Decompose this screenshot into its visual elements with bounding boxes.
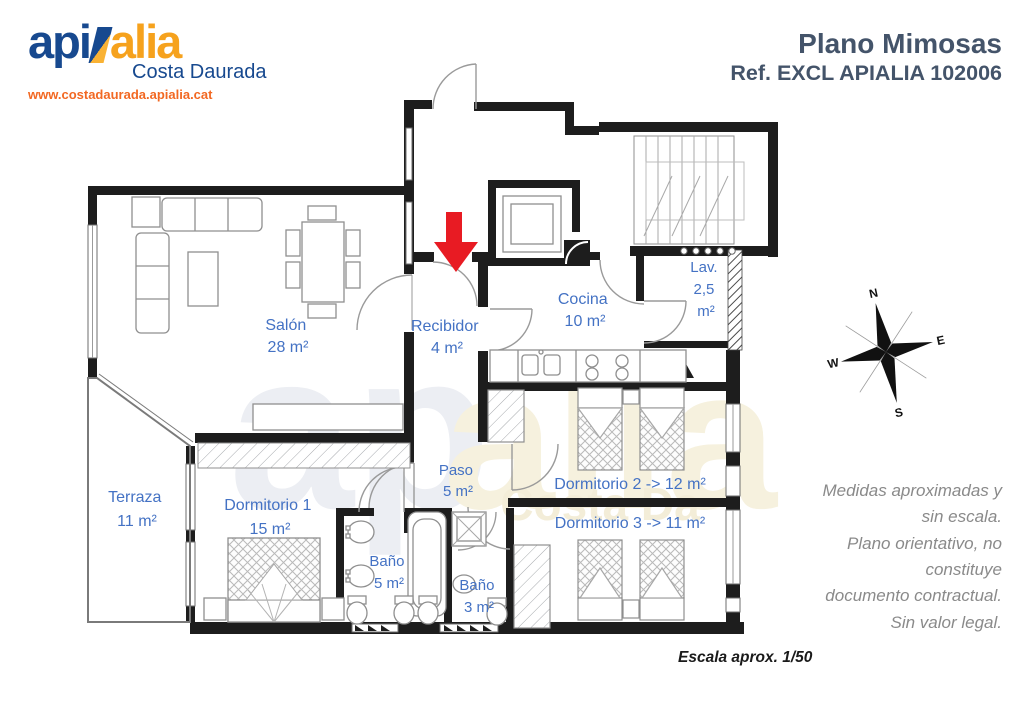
kitchen-counter — [490, 350, 686, 382]
room-label-cocina: Cocina 10 m² — [558, 291, 612, 330]
staircase — [634, 136, 744, 244]
disclaimer-line: documento contractual. — [762, 583, 1002, 609]
disclaimer-line: constituye — [762, 557, 1002, 583]
compass-e-label: E — [935, 333, 946, 348]
legal-disclaimer: Medidas aproximadas y sin escala. Plano … — [762, 478, 1002, 636]
bedroom3-furniture — [514, 540, 684, 628]
disclaimer-line: Sin valor legal. — [762, 610, 1002, 636]
disclaimer-line: Medidas aproximadas y — [762, 478, 1002, 504]
plan-title-block: Plano Mimosas Ref. EXCL APIALIA 102006 — [730, 28, 1002, 87]
agency-logo: api alia Costa Daurada www.costadaurada.… — [28, 18, 267, 102]
logo-website-url[interactable]: www.costadaurada.apialia.cat — [28, 87, 267, 102]
compass-rose: N E S W — [814, 274, 959, 432]
room-label-dormitorio2: Dormitorio 2 -> 12 m² — [554, 476, 706, 493]
compass-n-label: N — [868, 286, 879, 301]
room-label-terraza: Terraza 11 m² — [108, 489, 166, 530]
scale-note: Escala aprox. 1/50 — [678, 649, 812, 667]
logo-subtitle: Costa Daurada — [132, 61, 267, 83]
room-label-banyo5: Baño 5 m² — [369, 553, 408, 592]
room-label-banyo3: Baño 3 m² — [459, 577, 498, 616]
page-title: Plano Mimosas — [730, 28, 1002, 60]
logo-text-alia: alia — [110, 18, 180, 65]
compass-w-label: W — [826, 355, 841, 371]
logo-leaf-icon — [88, 27, 112, 63]
room-label-lavadero: Lav. 2,5 m² — [690, 259, 721, 320]
compass-s-label: S — [894, 405, 905, 420]
room-label-dormitorio3: Dormitorio 3 -> 11 m² — [555, 515, 706, 532]
reference-number: Ref. EXCL APIALIA 102006 — [730, 60, 1002, 87]
logo-text-api: api — [28, 18, 90, 65]
logo-wordmark: api alia — [28, 18, 267, 65]
floorplan-page: api alia Costa Daurada www.costadaurada.… — [0, 0, 1024, 709]
disclaimer-line: sin escala. — [762, 504, 1002, 530]
disclaimer-line: Plano orientativo, no — [762, 531, 1002, 557]
party-wall-hatch — [728, 250, 742, 350]
